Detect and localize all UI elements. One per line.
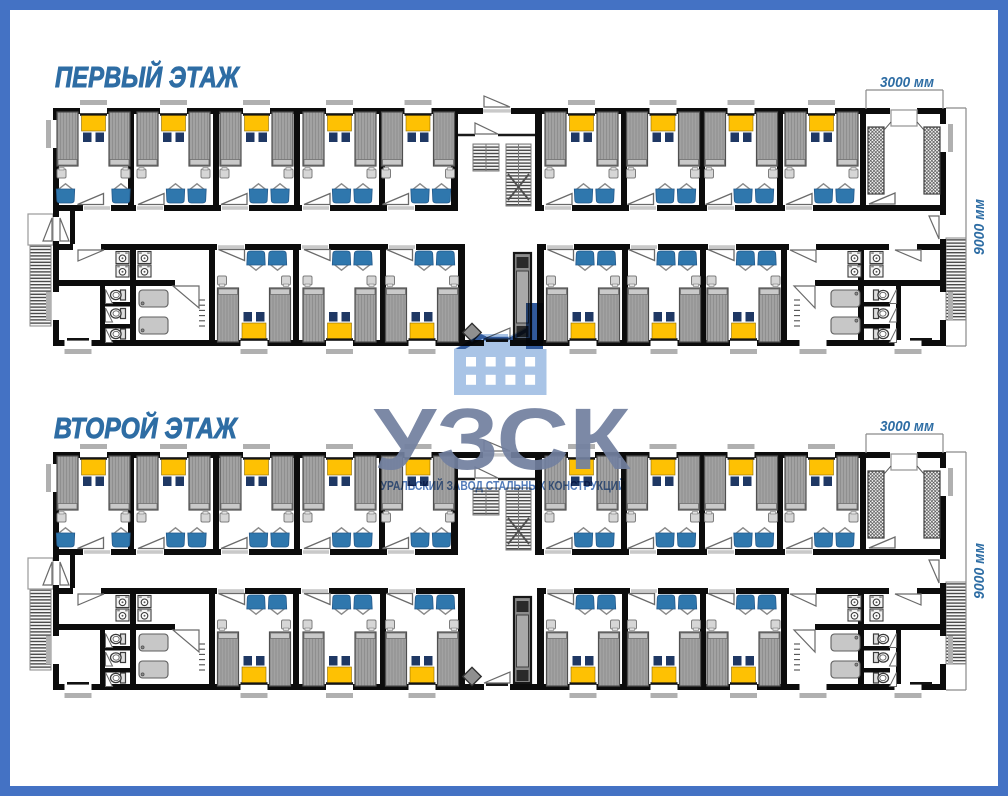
svg-text:9000 мм: 9000 мм (972, 543, 988, 599)
svg-text:3000 мм: 3000 мм (880, 75, 934, 91)
svg-text:3000 мм: 3000 мм (880, 419, 934, 435)
svg-text:ПЕРВЫЙ ЭТАЖ: ПЕРВЫЙ ЭТАЖ (55, 59, 241, 94)
svg-text:ВТОРОЙ ЭТАЖ: ВТОРОЙ ЭТАЖ (54, 410, 239, 445)
svg-text:УЗСК: УЗСК (374, 391, 632, 488)
svg-text:9000 мм: 9000 мм (972, 199, 988, 255)
